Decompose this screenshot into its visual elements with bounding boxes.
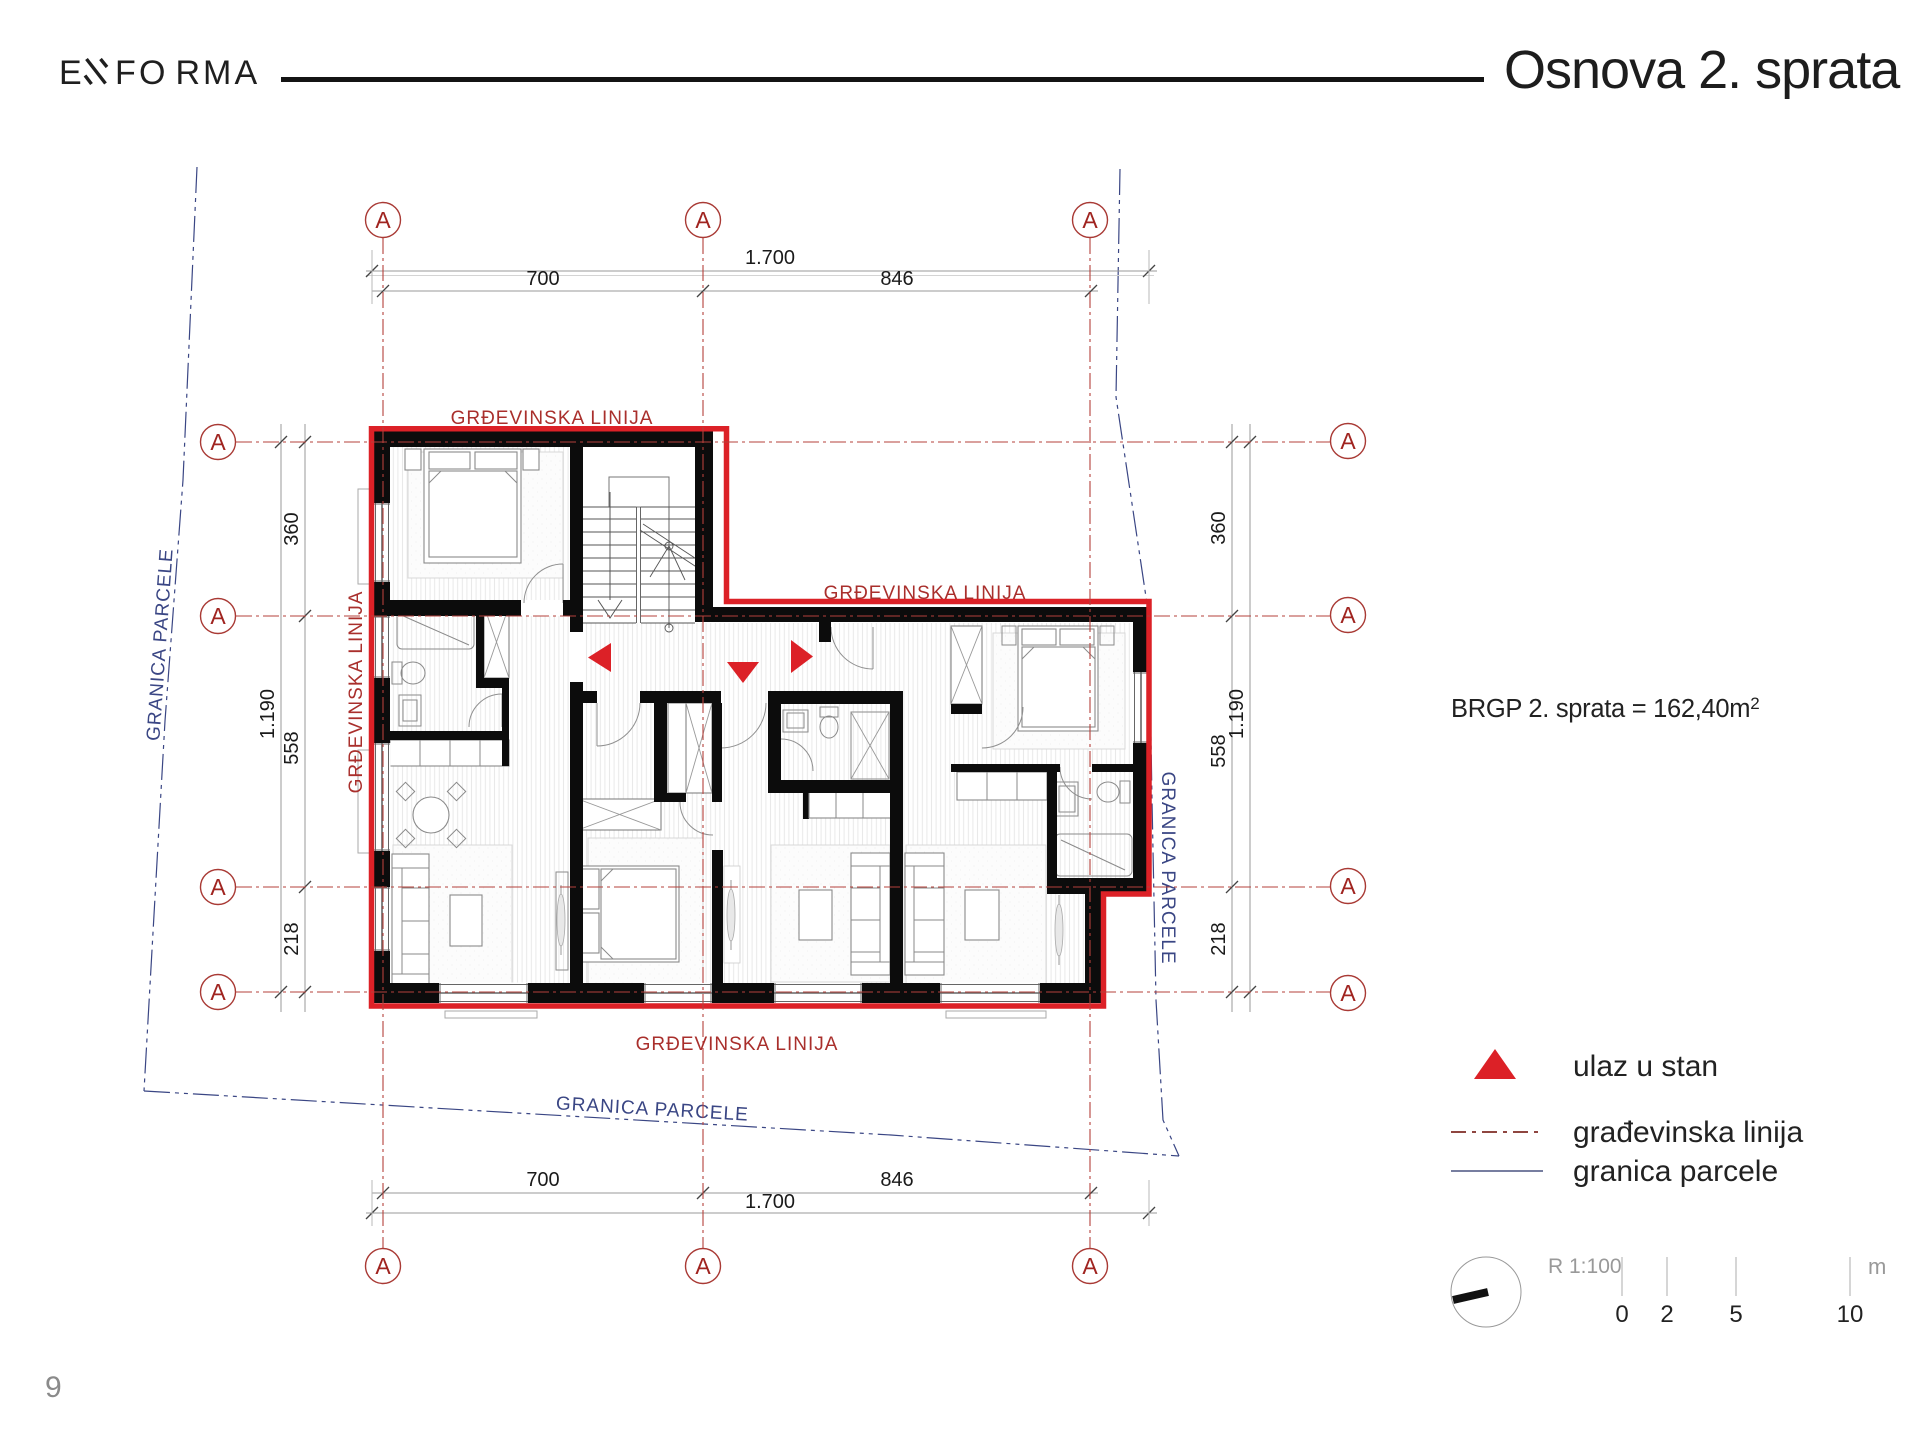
svg-text:GRANICA PARCELE: GRANICA PARCELE [143,548,177,742]
svg-text:2: 2 [1660,1301,1673,1328]
svg-text:A: A [1340,602,1356,628]
svg-text:A: A [695,207,711,233]
svg-text:R: R [176,54,201,92]
svg-text:0: 0 [1615,1301,1628,1328]
svg-text:A: A [210,429,226,455]
svg-text:A: A [210,603,226,629]
svg-text:1.190: 1.190 [257,689,279,739]
svg-text:A: A [695,1253,711,1279]
svg-text:granica parcele: granica parcele [1573,1155,1778,1188]
svg-text:O: O [139,54,165,92]
svg-text:A: A [375,1253,391,1279]
svg-text:A: A [1082,1253,1098,1279]
svg-text:700: 700 [526,268,559,290]
svg-text:846: 846 [880,1169,913,1191]
svg-text:360: 360 [281,512,303,545]
svg-text:9: 9 [45,1371,62,1404]
svg-text:A: A [235,54,258,92]
svg-text:558: 558 [281,731,303,764]
svg-text:Osnova 2. sprata: Osnova 2. sprata [1504,40,1901,100]
svg-text:218: 218 [281,922,303,955]
svg-text:GRĐEVINSKA LINIJA: GRĐEVINSKA LINIJA [636,1034,839,1055]
svg-text:A: A [210,979,226,1005]
svg-text:218: 218 [1208,922,1230,955]
svg-text:ulaz u stan: ulaz u stan [1573,1050,1718,1083]
svg-text:1.700: 1.700 [745,247,795,269]
svg-text:GRĐEVINSKA LINIJA: GRĐEVINSKA LINIJA [824,583,1027,604]
svg-text:846: 846 [880,268,913,290]
svg-text:BRGP 2. sprata = 162,40m2: BRGP 2. sprata = 162,40m2 [1451,694,1759,723]
svg-text:A: A [1340,428,1356,454]
svg-text:360: 360 [1208,511,1230,544]
svg-text:M: M [203,54,231,92]
svg-text:građevinska linija: građevinska linija [1573,1116,1803,1149]
svg-text:1.700: 1.700 [745,1191,795,1213]
svg-text:F: F [115,54,136,92]
svg-text:GRĐEVINSKA LINIJA: GRĐEVINSKA LINIJA [346,591,367,794]
svg-text:A: A [1082,207,1098,233]
svg-text:A: A [375,207,391,233]
svg-text:R 1:100: R 1:100 [1548,1255,1622,1278]
svg-text:A: A [1340,980,1356,1006]
svg-text:A: A [210,874,226,900]
svg-text:1.190: 1.190 [1226,689,1248,739]
svg-text:GRĐEVINSKA LINIJA: GRĐEVINSKA LINIJA [451,408,654,429]
svg-text:700: 700 [526,1169,559,1191]
svg-text:m: m [1868,1254,1886,1279]
svg-text:GRANICA PARCELE: GRANICA PARCELE [1157,771,1178,964]
svg-text:5: 5 [1729,1301,1742,1328]
svg-text:E: E [59,54,82,92]
svg-text:10: 10 [1837,1301,1864,1328]
svg-text:A: A [1340,873,1356,899]
